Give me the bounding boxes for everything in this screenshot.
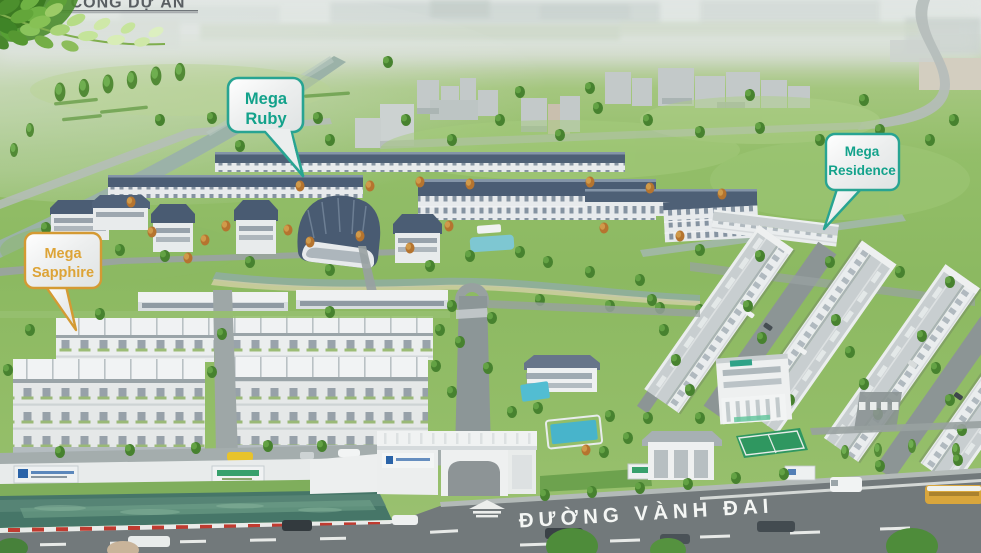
svg-text:Mega: Mega: [245, 90, 288, 108]
svg-text:Ruby: Ruby: [245, 110, 287, 128]
svg-text:Mega: Mega: [845, 144, 880, 159]
svg-text:CỔNG DỰ ÁN: CỔNG DỰ ÁN: [71, 0, 186, 12]
svg-text:Mega: Mega: [44, 246, 82, 262]
svg-text:Residence: Residence: [828, 163, 896, 178]
svg-text:Sapphire: Sapphire: [32, 265, 94, 281]
